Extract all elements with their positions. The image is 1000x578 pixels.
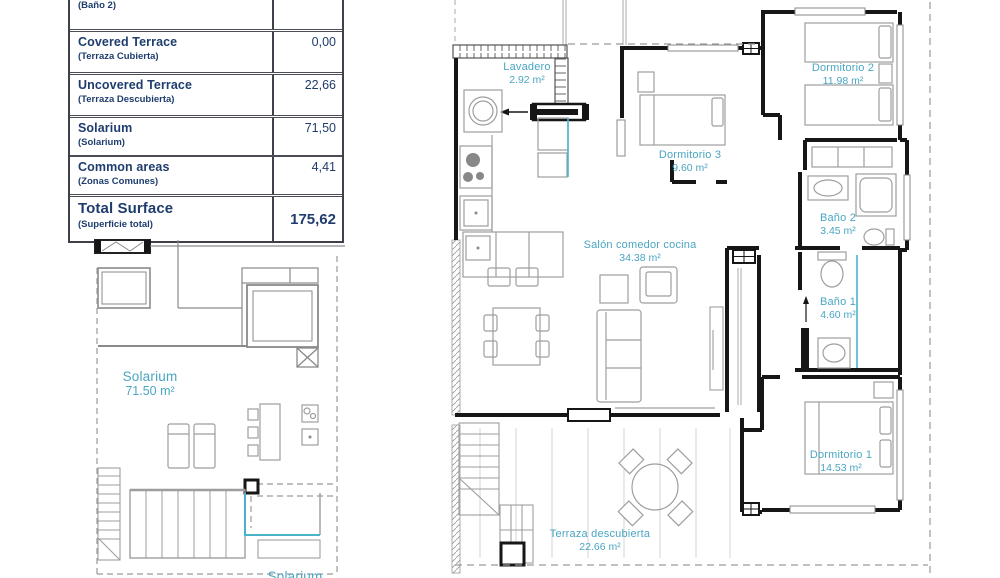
row-value: 71,50 bbox=[272, 118, 342, 155]
row-label-en: Uncovered Terrace bbox=[78, 78, 268, 92]
armchair-symbol bbox=[640, 267, 677, 303]
boundary-dashed bbox=[455, 2, 930, 578]
floorplan-page: Bathroom 2 (Baño 2) 3,45 Covered Terrace… bbox=[0, 0, 1000, 578]
table-row: Solarium (Solarium) 71,50 bbox=[70, 115, 342, 155]
washing-machine-symbol bbox=[464, 90, 502, 132]
apartment-floorplan bbox=[450, 0, 940, 578]
tv-unit-symbol bbox=[710, 307, 723, 390]
row-label-es: (Baño 2) bbox=[78, 0, 268, 11]
table-row: Bathroom 2 (Baño 2) 3,45 bbox=[70, 0, 342, 29]
walls bbox=[455, 12, 907, 512]
kitchen-symbols bbox=[460, 135, 563, 286]
row-label-en: Covered Terrace bbox=[78, 35, 268, 49]
shower-wall bbox=[801, 328, 809, 368]
shaft-lines bbox=[738, 268, 741, 405]
wardrobe-symbol bbox=[538, 118, 568, 177]
row-label-es: (Solarium) bbox=[78, 137, 268, 148]
decking-lines bbox=[480, 428, 730, 558]
terrace-table-symbol bbox=[618, 449, 692, 526]
solarium-floorplan bbox=[60, 228, 345, 578]
surface-table: Bathroom 2 (Baño 2) 3,45 Covered Terrace… bbox=[68, 0, 344, 243]
sofa-symbol bbox=[597, 310, 641, 402]
planter-symbol bbox=[95, 240, 150, 253]
coffee-table-symbol bbox=[600, 275, 628, 303]
row-value: 0,00 bbox=[272, 32, 342, 72]
bed-symbols-dorm2 bbox=[805, 23, 893, 167]
row-value: 4,41 bbox=[272, 157, 342, 194]
pool-step bbox=[258, 540, 320, 558]
bar-counter-symbol bbox=[248, 404, 280, 460]
table-row: Uncovered Terrace (Terraza Descubierta) … bbox=[70, 72, 342, 115]
shaft-symbol bbox=[297, 348, 318, 367]
reference-walls bbox=[455, 0, 626, 45]
outdoor-kitchen-symbol bbox=[302, 405, 318, 445]
bathroom1-symbols bbox=[803, 252, 857, 368]
sun-lounger-symbols bbox=[168, 424, 215, 468]
table-row: Common areas (Zonas Comunes) 4,41 bbox=[70, 155, 342, 194]
table-row: Covered Terrace (Terraza Cubierta) 0,00 bbox=[70, 29, 342, 72]
column-symbols bbox=[733, 43, 759, 515]
row-label-en: Solarium bbox=[78, 121, 268, 135]
pergola-symbol bbox=[130, 490, 245, 558]
row-label-en: Common areas bbox=[78, 160, 268, 174]
row-label-es: (Terraza Descubierta) bbox=[78, 94, 268, 105]
bed-symbol-dorm3 bbox=[638, 72, 725, 145]
row-label-en: Total Surface bbox=[78, 200, 268, 217]
row-label-es: (Terraza Cubierta) bbox=[78, 51, 268, 62]
row-value: 22,66 bbox=[272, 75, 342, 115]
stairs-symbol bbox=[98, 468, 120, 560]
party-wall-hatch bbox=[452, 45, 568, 573]
pool-edge bbox=[245, 493, 320, 535]
post-symbol bbox=[245, 480, 258, 493]
bed-symbol-dorm1 bbox=[805, 382, 893, 474]
terrace-stairs-symbol bbox=[459, 423, 533, 565]
bathroom2-symbols bbox=[808, 174, 896, 245]
row-label-es: (Zonas Comunes) bbox=[78, 176, 268, 187]
dining-table-symbol bbox=[484, 308, 549, 365]
row-value: 3,45 bbox=[272, 0, 342, 29]
